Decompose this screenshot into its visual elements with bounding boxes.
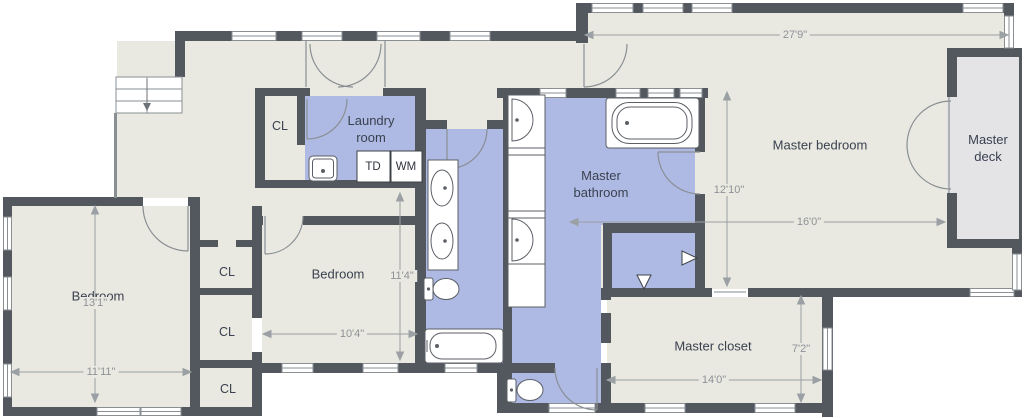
window-icon — [963, 4, 1003, 13]
window-icon — [823, 328, 832, 370]
dim-master-bedroom-height: 12'10" — [711, 184, 747, 196]
room-label-master-closet: Master closet — [653, 339, 773, 356]
dim-bedroom-center-height: 11'4" — [387, 270, 417, 282]
room-label-master-deck: Master deck — [958, 132, 1018, 166]
window-icon — [1013, 254, 1022, 290]
dim-master-closet-height: 7'2" — [789, 343, 813, 355]
window-icon — [363, 364, 398, 373]
window-icon — [4, 217, 12, 250]
window-icon — [377, 32, 420, 41]
dim-bedroom-left-height: 13'1" — [80, 297, 110, 309]
dim-bedroom-center-width: 10'4" — [337, 328, 367, 340]
toilet-icon — [424, 278, 459, 300]
dim-master-closet-width: 14'0" — [699, 374, 729, 386]
vanity-icon — [428, 160, 458, 270]
window-icon — [755, 404, 795, 413]
window-icon — [616, 89, 640, 98]
window-icon — [141, 408, 181, 416]
closet-label-2: CL — [219, 325, 235, 339]
closet-label-hall: CL — [272, 119, 288, 133]
window-icon — [970, 289, 1014, 297]
room-label-master-bathroom: Master bathroom — [559, 168, 643, 202]
window-icon — [592, 4, 633, 13]
master-vanity-icon — [508, 95, 545, 307]
master-bathtub-icon — [606, 98, 699, 148]
window-icon — [549, 404, 595, 413]
room-label-bedroom-center: Bedroom — [293, 267, 383, 284]
window-icon — [648, 89, 674, 98]
dim-master-bedroom-lower-width: 16'0" — [794, 216, 824, 228]
room-label-master-bedroom: Master bedroom — [755, 138, 885, 155]
closet-label-1: CL — [219, 265, 235, 279]
window-icon — [232, 32, 276, 41]
window-icon — [692, 4, 732, 13]
window-icon — [4, 277, 12, 310]
closet-label-3: CL — [220, 382, 236, 396]
window-icon — [302, 32, 342, 41]
window-icon — [4, 364, 12, 397]
window-icon — [643, 4, 683, 13]
window-icon — [645, 404, 685, 413]
washing-machine-label: WM — [396, 161, 416, 173]
dim-master-bedroom-width: 27'9" — [780, 29, 810, 41]
toilet-icon — [507, 379, 543, 402]
window-icon — [97, 408, 140, 416]
tumble-dryer-label: TD — [365, 161, 380, 173]
floor-plan: Master bedroom Master deck Master bathro… — [0, 0, 1024, 418]
window-icon — [450, 32, 490, 41]
window-icon — [1005, 16, 1014, 48]
window-icon — [680, 89, 702, 98]
stairs-icon — [116, 77, 182, 113]
bathtub-icon — [425, 329, 503, 363]
window-icon — [282, 364, 313, 373]
window-icon — [445, 364, 477, 373]
floor-plan-drawing — [0, 0, 1024, 418]
room-label-laundry-room: Laundry room — [335, 113, 407, 147]
dim-bedroom-left-width: 11'11" — [84, 366, 119, 378]
laundry-sink-icon — [309, 156, 337, 181]
